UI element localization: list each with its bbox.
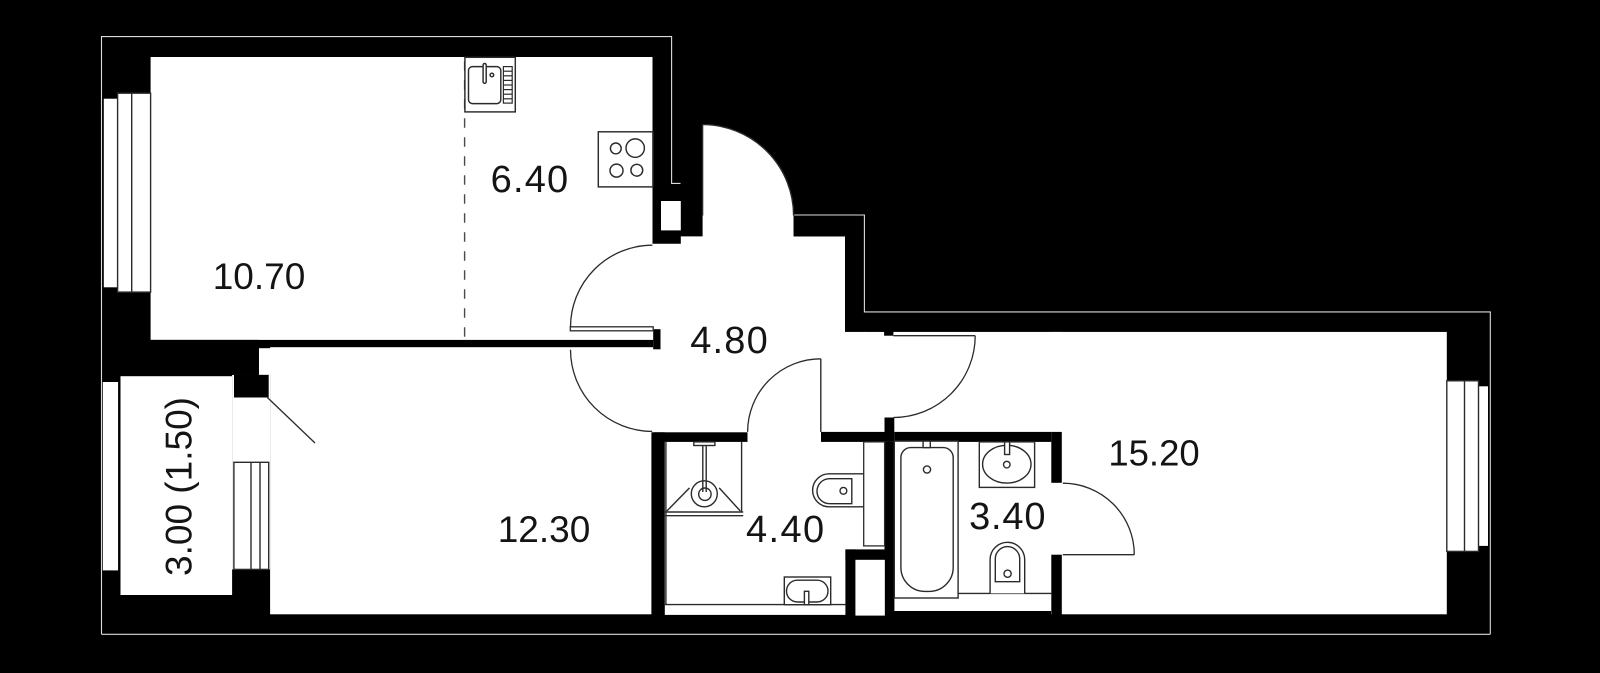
svg-text:4.40: 4.40 bbox=[746, 509, 826, 551]
svg-text:3.40: 3.40 bbox=[969, 496, 1046, 538]
svg-text:12.30: 12.30 bbox=[498, 509, 591, 550]
svg-text:4.80: 4.80 bbox=[690, 320, 769, 362]
svg-text:3.00 (1.50): 3.00 (1.50) bbox=[159, 397, 200, 576]
svg-text:6.40: 6.40 bbox=[491, 159, 570, 201]
svg-text:10.70: 10.70 bbox=[213, 256, 306, 297]
svg-text:15.20: 15.20 bbox=[1108, 433, 1199, 474]
